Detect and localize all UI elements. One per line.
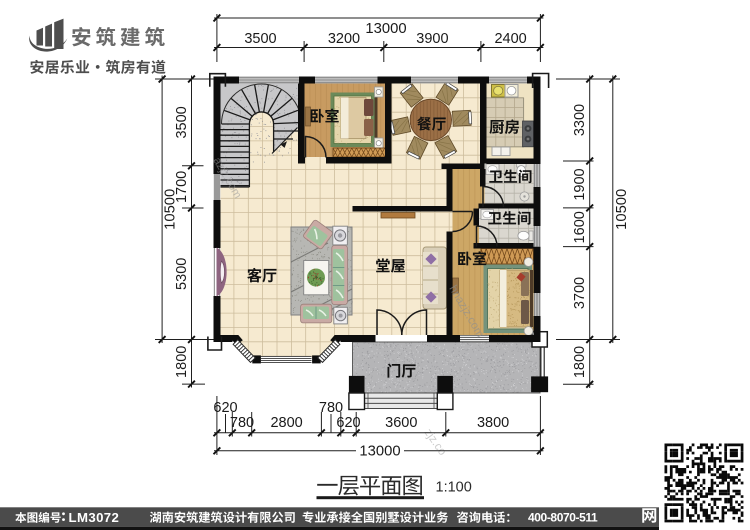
svg-text:13000: 13000 [365,21,406,37]
svg-text:3800: 3800 [477,415,509,431]
svg-text:3900: 3900 [416,31,448,47]
svg-text:1900: 1900 [572,168,588,200]
svg-text:3700: 3700 [572,277,588,309]
svg-text:13000: 13000 [359,444,400,460]
svg-text:1:100: 1:100 [436,480,472,496]
svg-text:3600: 3600 [385,415,417,431]
svg-text:780: 780 [319,400,343,416]
svg-text:1600: 1600 [572,211,588,243]
svg-text:780: 780 [230,415,254,431]
svg-text:10500: 10500 [163,189,179,230]
svg-text:2800: 2800 [270,415,302,431]
svg-text:3200: 3200 [328,31,360,47]
svg-text:3500: 3500 [244,31,276,47]
svg-text:2400: 2400 [494,31,526,47]
svg-text:5300: 5300 [174,258,190,290]
svg-text:3300: 3300 [572,104,588,136]
svg-text:3500: 3500 [174,106,190,138]
svg-text:620: 620 [213,400,237,416]
svg-text:1800: 1800 [174,346,190,378]
svg-text:10500: 10500 [614,189,630,230]
svg-text:LM3072: LM3072 [69,510,120,525]
svg-text:1800: 1800 [572,346,588,378]
svg-text:620: 620 [336,415,360,431]
svg-text:400-8070-511: 400-8070-511 [528,511,598,525]
